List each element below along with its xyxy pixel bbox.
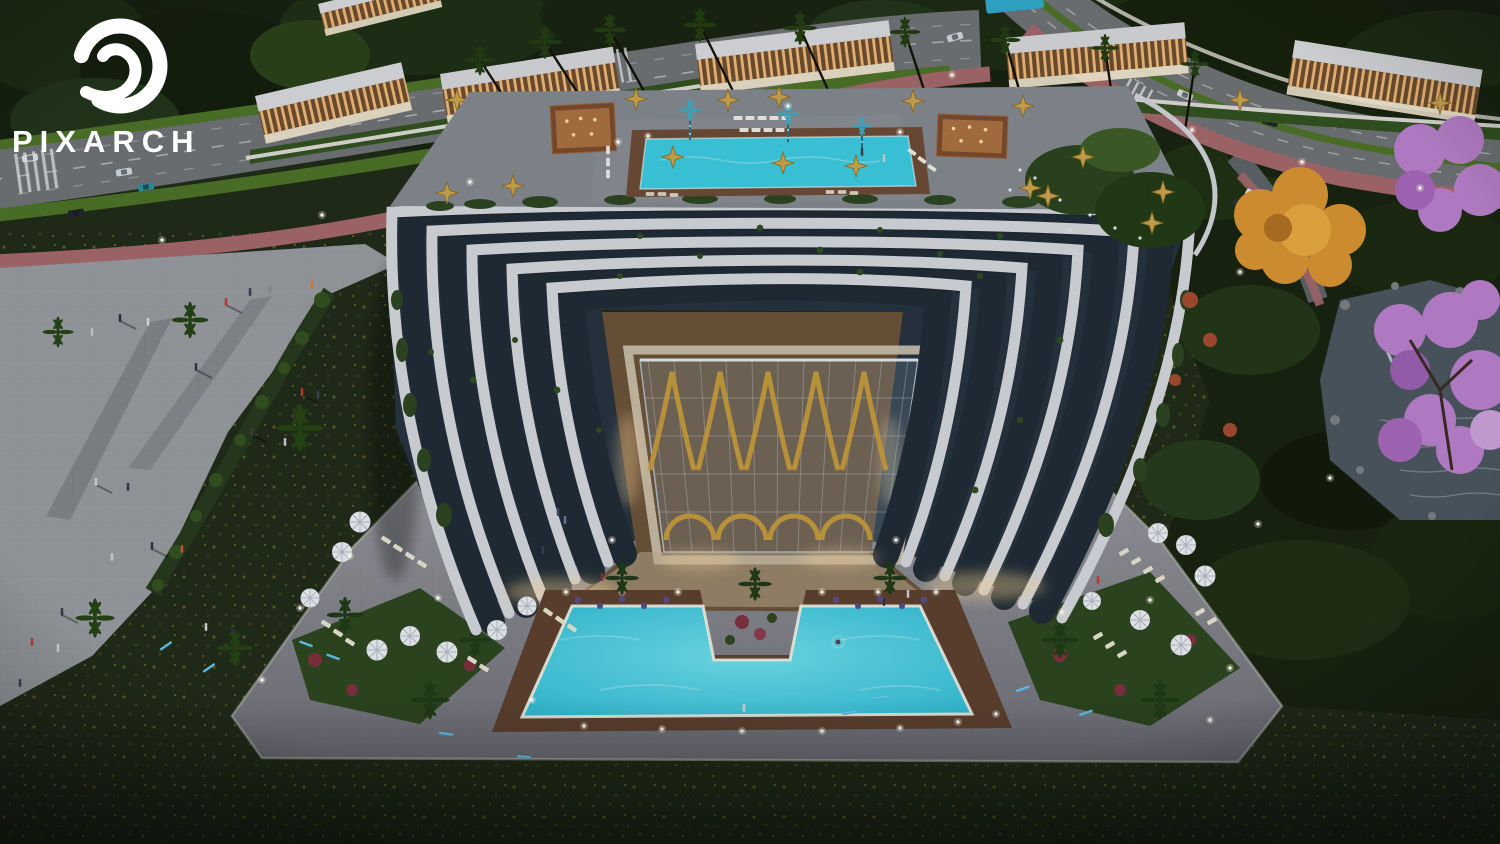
- architectural-render-scene: PIXARCH: [0, 0, 1500, 844]
- brand-name: PIXARCH: [12, 124, 201, 160]
- watermark: PIXARCH: [10, 6, 260, 166]
- wave-swirl-logo: [10, 6, 260, 121]
